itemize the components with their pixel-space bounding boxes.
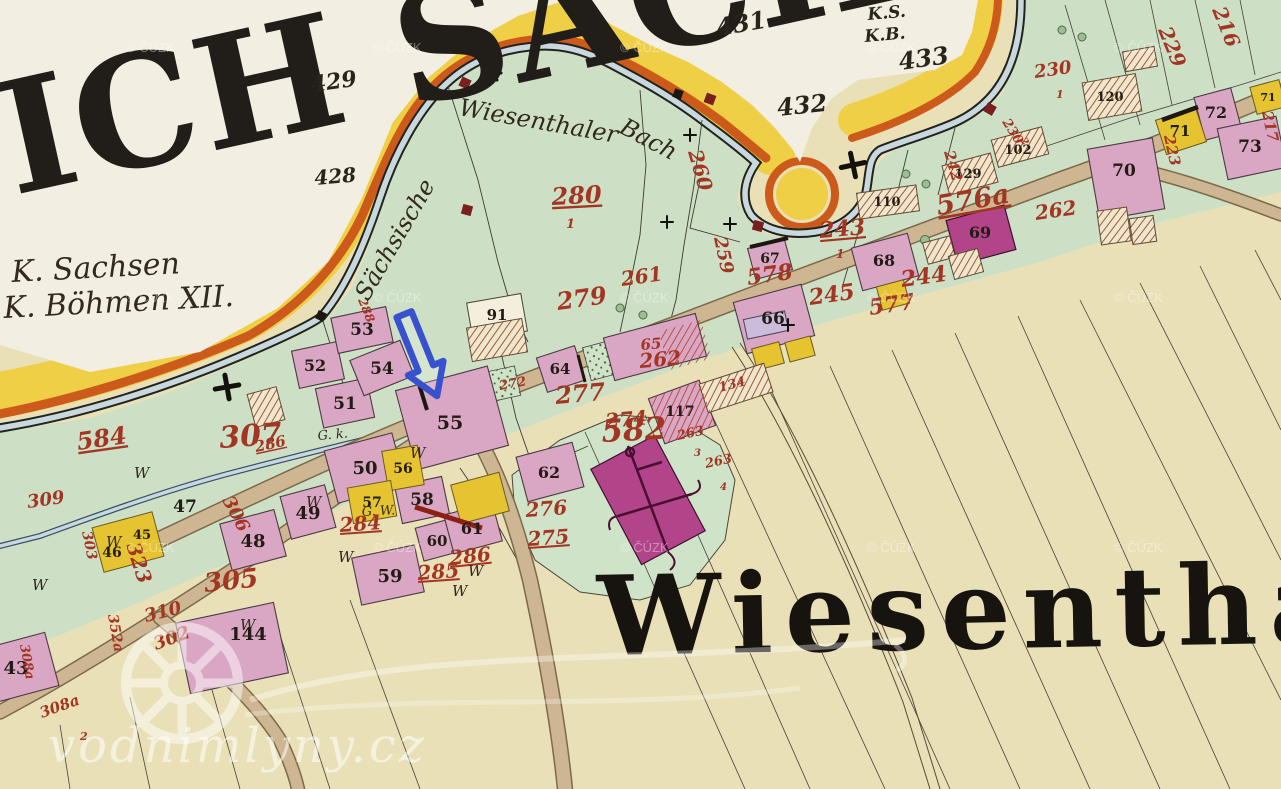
cuzk-watermark: © ČÚZK	[620, 40, 669, 55]
house-number: 71	[1260, 91, 1275, 104]
house-number: 73	[1238, 137, 1262, 157]
parcel-number: 275	[526, 524, 570, 551]
cuzk-watermark: © ČÚZK	[867, 40, 916, 55]
village-title: Wiesenthal	[595, 538, 1281, 681]
house-number: 120	[1096, 90, 1123, 105]
parcel-number: 274	[603, 405, 648, 433]
cuzk-watermark: © ČÚZK	[126, 290, 175, 305]
meadow-w-mark: W	[32, 576, 49, 594]
house-number: 58	[410, 490, 434, 510]
cuzk-watermark: © ČÚZK	[373, 540, 422, 555]
meadow-w-mark: W	[106, 533, 123, 551]
border-number: K.S.	[866, 2, 907, 25]
house-number: 53	[350, 320, 374, 340]
cuzk-watermark: © ČÚZK	[1114, 290, 1163, 305]
meadow-w-mark: W	[410, 444, 427, 462]
house-number: 47	[173, 497, 197, 517]
house-number: 60	[427, 532, 448, 550]
parcel-number: 65	[640, 334, 662, 354]
parcel-number: 277	[553, 377, 607, 410]
house-number: 54	[370, 359, 394, 379]
house-number: 51	[333, 394, 357, 414]
meadow-w-mark: W	[338, 548, 355, 566]
house-number: 110	[873, 195, 900, 210]
house-number: 91	[487, 306, 508, 324]
parcel-number: 1	[836, 247, 844, 261]
parcel-number: 305	[203, 563, 260, 599]
cadastral-map-canvas[interactable]: ICH SACHWiesenthal429428431432433K.S.K.B…	[0, 0, 1281, 789]
cursive-label: G. W.	[361, 503, 395, 520]
house-number: 48	[240, 531, 265, 552]
building	[1129, 215, 1156, 244]
house-number: 55	[437, 412, 463, 434]
parcel-number: 3	[694, 448, 701, 459]
cuzk-watermark: © ČÚZK	[126, 540, 175, 555]
house-number: 70	[1112, 161, 1136, 181]
parcel-number: 243	[817, 214, 866, 244]
cuzk-watermark: © ČÚZK	[373, 40, 422, 55]
house-number: 59	[377, 566, 402, 587]
building	[1097, 207, 1131, 245]
cuzk-watermark: © ČÚZK	[620, 290, 669, 305]
cuzk-watermark: © ČÚZK	[867, 290, 916, 305]
parcel-number: 4	[720, 482, 727, 493]
house-number: 50	[352, 458, 377, 479]
house-number: 66	[761, 309, 785, 329]
meadow-w-mark: W	[306, 493, 323, 511]
cuzk-watermark: © ČÚZK	[867, 540, 916, 555]
cuzk-watermark: © ČÚZK	[1114, 40, 1163, 55]
meadow-w-mark: W	[452, 582, 469, 600]
house-number: 117	[665, 404, 694, 420]
vodnimlyny-watermark: vodnimlyny.cz	[48, 718, 427, 774]
parcel-number: 280	[550, 179, 603, 211]
house-number: 64	[550, 360, 571, 378]
cuzk-watermark: © ČÚZK	[126, 40, 175, 55]
house-number: 56	[393, 461, 412, 477]
cuzk-watermark: © ČÚZK	[373, 290, 422, 305]
meadow-w-mark: W	[240, 616, 257, 634]
border-number: 428	[313, 162, 357, 190]
meadow-w-mark: W	[468, 562, 485, 580]
house-number: 72	[1205, 103, 1227, 122]
house-number: 61	[461, 519, 483, 538]
map-svg: ICH SACHWiesenthal429428431432433K.S.K.B…	[0, 0, 1281, 789]
cursive-label: G. k.	[317, 426, 348, 444]
house-number: 102	[1004, 143, 1031, 158]
house-number: 68	[873, 251, 895, 270]
border-number: 432	[776, 88, 829, 122]
cuzk-watermark: © ČÚZK	[620, 540, 669, 555]
house-number: 52	[304, 356, 326, 375]
meadow-w-mark: W	[134, 464, 151, 482]
border-meander-island	[776, 168, 828, 220]
parcel-number: 276	[524, 495, 568, 522]
cuzk-watermark: © ČÚZK	[1114, 540, 1163, 555]
parcel-number: 1	[1056, 88, 1064, 101]
house-number: 62	[538, 463, 560, 482]
parcel-number: 1	[566, 217, 575, 232]
house-number: 69	[969, 223, 991, 242]
